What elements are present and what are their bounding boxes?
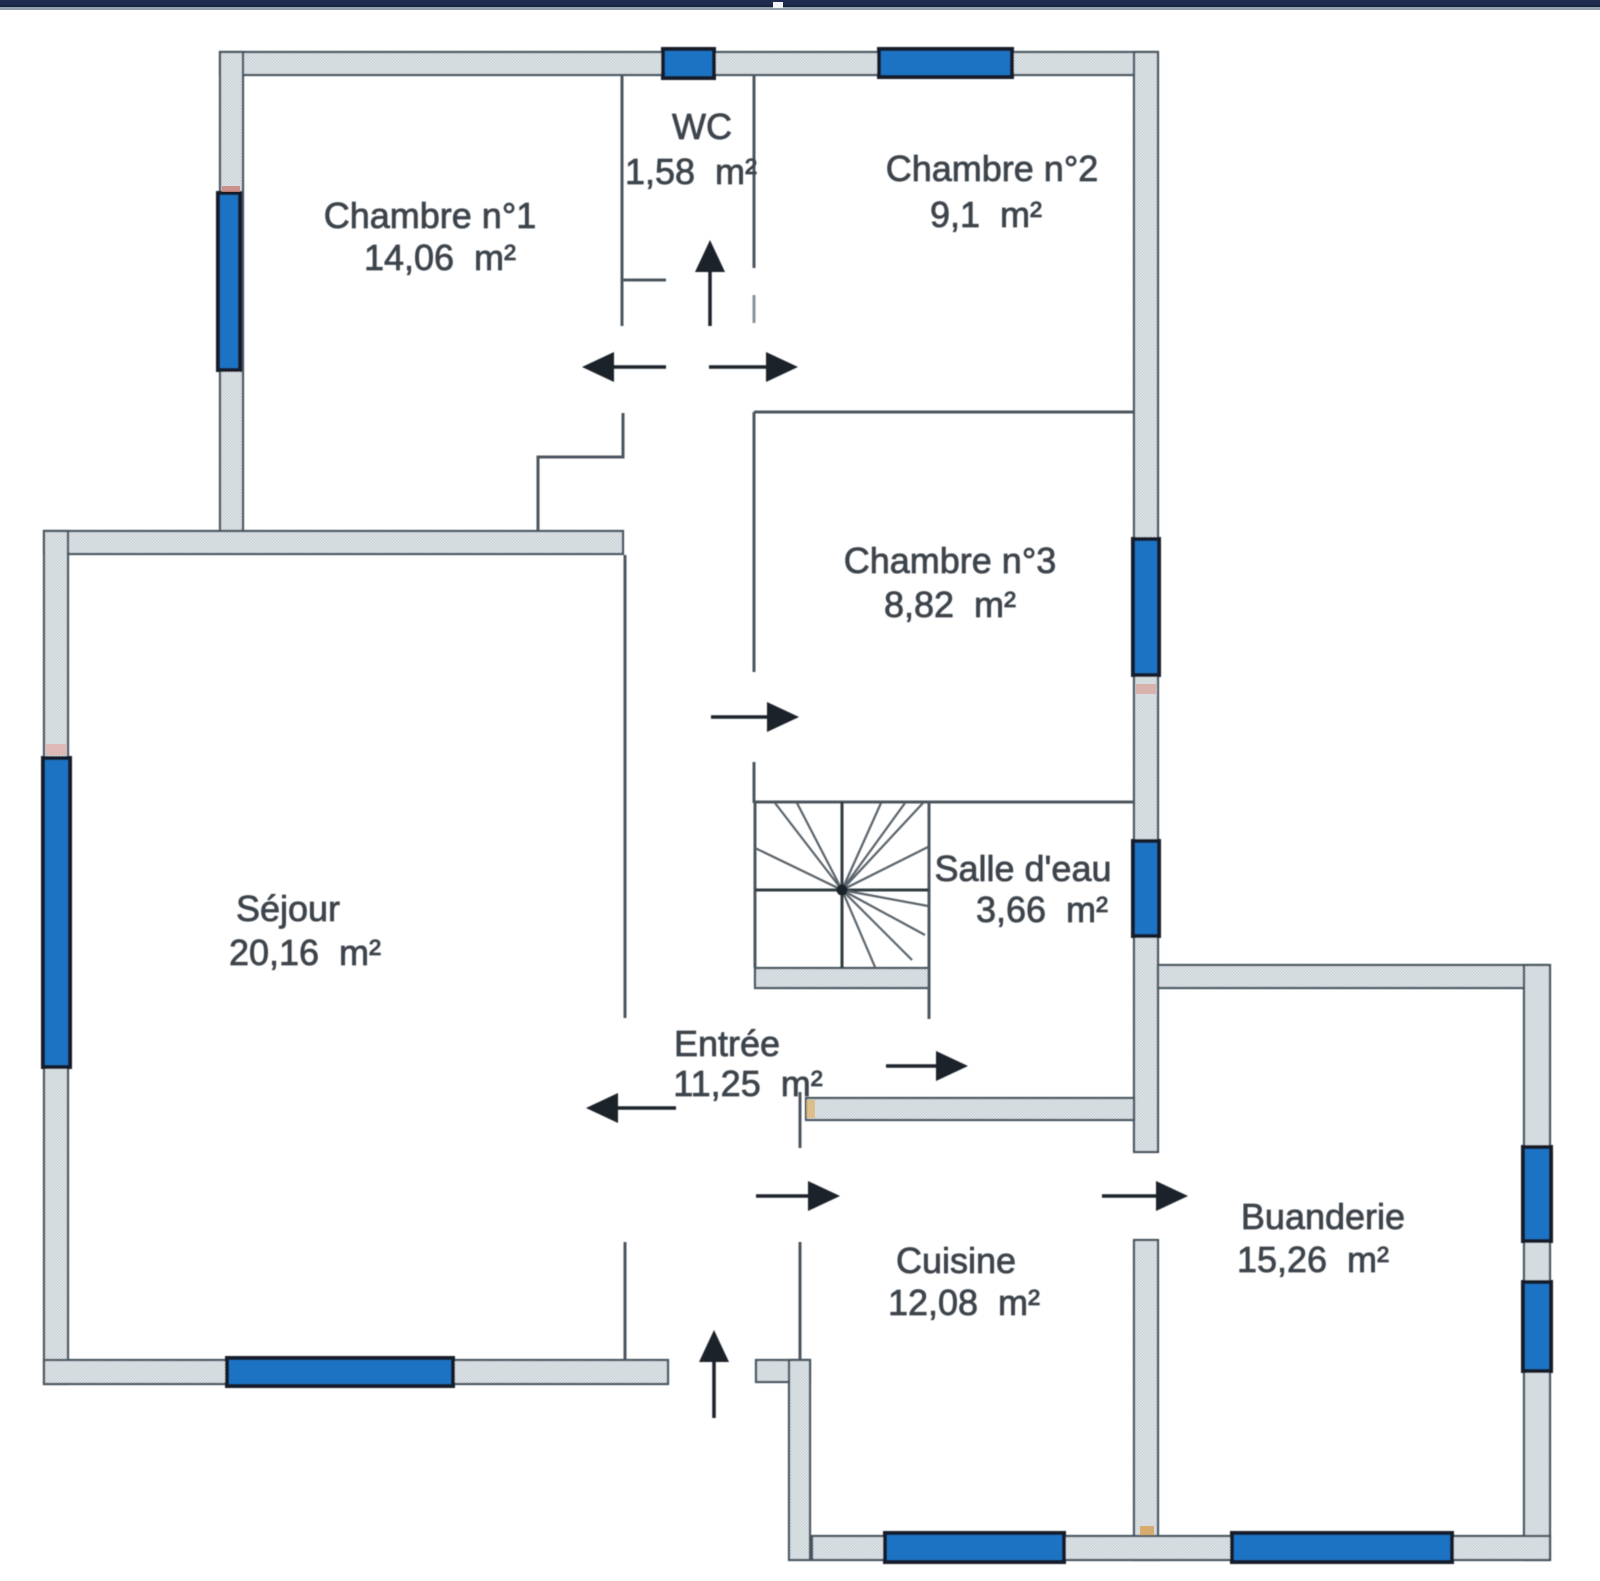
svg-text:Salle d'eau: Salle d'eau — [934, 848, 1111, 889]
svg-text:9,1 m²: 9,1 m² — [930, 194, 1042, 235]
svg-text:15,26 m²: 15,26 m² — [1237, 1239, 1389, 1280]
svg-text:8,82 m²: 8,82 m² — [884, 584, 1016, 625]
svg-text:20,16 m²: 20,16 m² — [229, 932, 381, 973]
svg-text:Chambre n°1: Chambre n°1 — [324, 195, 537, 236]
svg-text:Cuisine: Cuisine — [896, 1240, 1016, 1281]
svg-text:14,06 m²: 14,06 m² — [364, 237, 516, 278]
svg-text:3,66 m²: 3,66 m² — [976, 889, 1108, 930]
svg-text:11,25 m²: 11,25 m² — [673, 1063, 822, 1104]
svg-text:WC: WC — [672, 106, 732, 147]
svg-text:Buanderie: Buanderie — [1241, 1196, 1405, 1237]
svg-text:1,58 m²: 1,58 m² — [625, 151, 757, 192]
svg-text:12,08 m²: 12,08 m² — [888, 1282, 1040, 1323]
svg-text:Chambre n°3: Chambre n°3 — [844, 540, 1057, 581]
svg-text:Chambre n°2: Chambre n°2 — [886, 148, 1099, 189]
svg-text:Entrée: Entrée — [674, 1023, 780, 1064]
svg-text:Séjour: Séjour — [236, 888, 340, 929]
